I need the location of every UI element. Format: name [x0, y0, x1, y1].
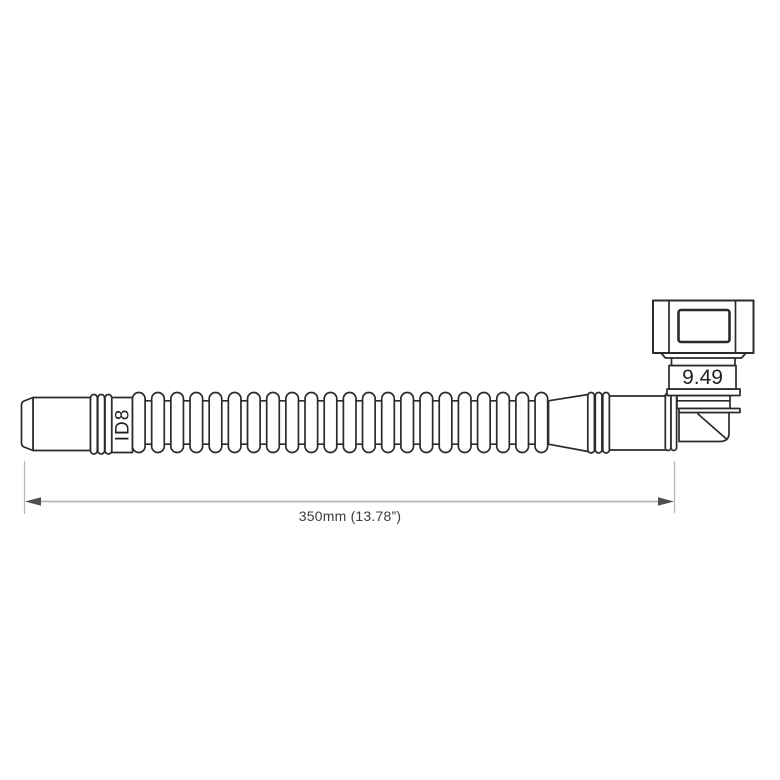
corrugation-rib [401, 393, 414, 453]
corrugation-rib [324, 393, 337, 453]
hose-left-ring [105, 395, 112, 455]
corrugation-rib [248, 393, 261, 453]
hose-right-tube [609, 396, 666, 450]
corrugation-rib [133, 393, 146, 453]
hose-right-ring [603, 393, 610, 454]
hose-left-ring [98, 395, 105, 455]
hose-left-ring [91, 395, 98, 455]
hose-id-label: ID8 [113, 409, 134, 442]
corrugation-rib [152, 393, 165, 453]
elbow-upper-block [677, 396, 730, 409]
corrugation-rib [190, 393, 203, 453]
hose-assembly: ID8 [22, 301, 754, 455]
corrugation-rib [305, 393, 318, 453]
corrugation-rib [516, 393, 529, 453]
corrugation-rib [420, 393, 433, 453]
corrugation-rib [458, 393, 471, 453]
retainer-clip-bar [679, 409, 740, 413]
connector-latch-window [679, 310, 730, 342]
corrugation-rib [267, 393, 280, 453]
hose-right-collar-ring [671, 393, 677, 451]
hose-right-ring [588, 393, 595, 454]
connector-size-label: 9.49 [682, 366, 723, 389]
technical-drawing-canvas: ID8 [0, 0, 780, 780]
length-dimension: 350mm (13.78”) [25, 461, 675, 524]
dimension-length-label: 350mm (13.78”) [299, 508, 401, 524]
elbow-housing [679, 413, 729, 442]
hose-left-tube [33, 398, 91, 451]
corrugation-rib [286, 393, 299, 453]
corrugation-rib [382, 393, 395, 453]
corrugation-rib [478, 393, 491, 453]
hose-right-ring [595, 393, 602, 454]
corrugation-rib [363, 393, 376, 453]
hose-left-end-cap [22, 398, 34, 451]
corrugation-rib [171, 393, 184, 453]
dimension-arrow-right [658, 497, 674, 506]
connector-flange [667, 389, 740, 396]
hose-right-end-fitting [588, 393, 677, 454]
hose-corrugation [133, 393, 589, 453]
hose-left-end-fitting: ID8 [22, 395, 134, 455]
drawing-page: ID8 [0, 0, 780, 780]
hose-right-collar-ring [665, 393, 671, 451]
corrugation-rib [497, 393, 510, 453]
corrugation-rib [228, 393, 241, 453]
connector-neck [672, 358, 736, 366]
corrugation-rib [535, 393, 548, 453]
dimension-arrow-left [25, 497, 41, 506]
corrugation-rib [439, 393, 452, 453]
corrugation-rib [343, 393, 356, 453]
hose-taper [549, 395, 589, 452]
corrugation-rib [209, 393, 222, 453]
